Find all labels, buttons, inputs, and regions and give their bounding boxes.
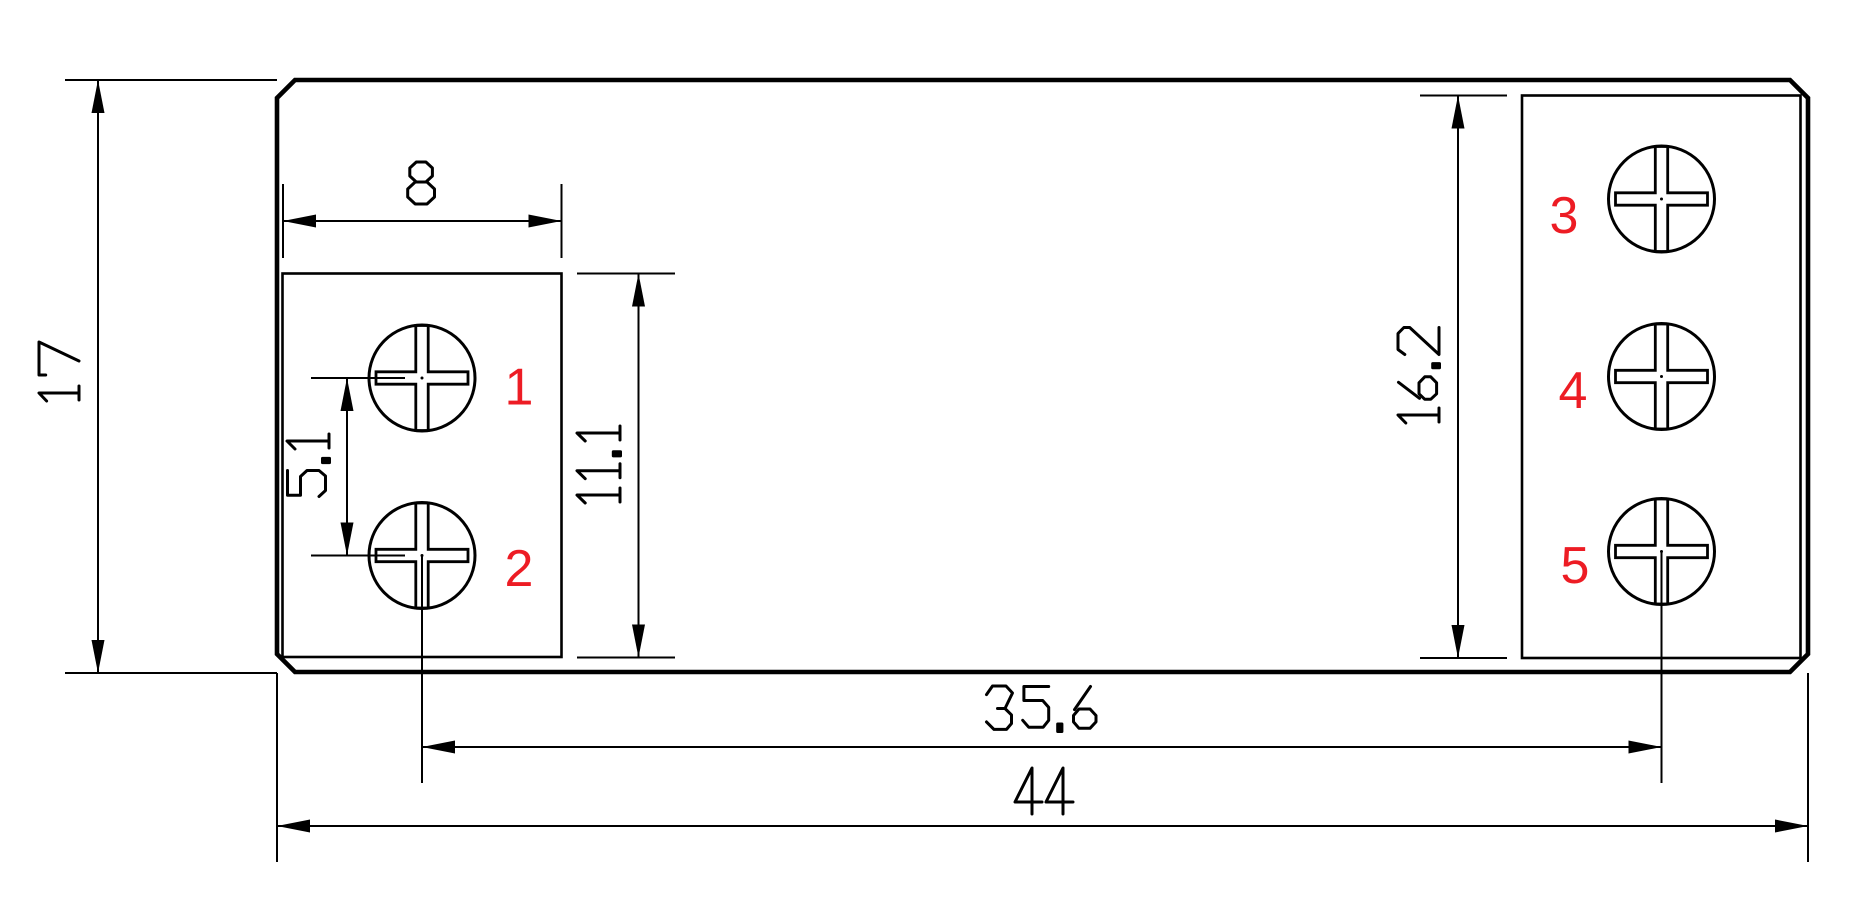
svg-text:3: 3 (1550, 187, 1579, 245)
svg-text:5: 5 (1561, 537, 1590, 595)
svg-text:4: 4 (1559, 362, 1588, 420)
svg-text:1: 1 (505, 359, 534, 417)
svg-text:2: 2 (505, 540, 534, 598)
